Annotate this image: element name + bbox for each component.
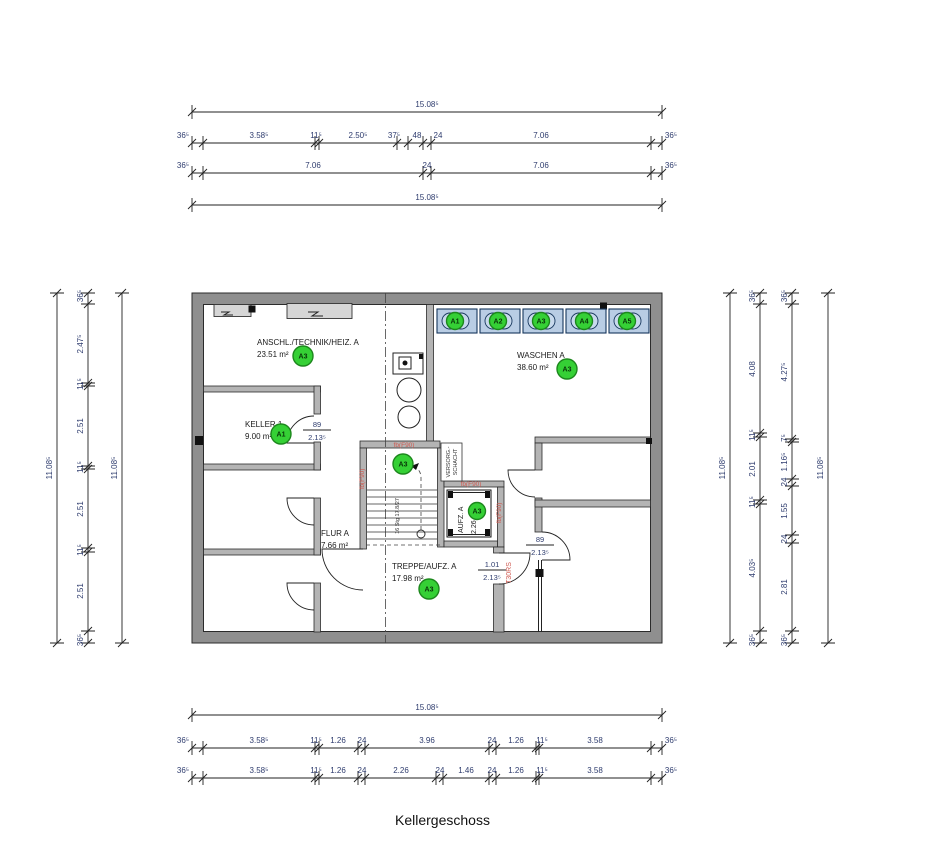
dim-label: 11⁵	[536, 736, 548, 745]
machine-tag-label: A3	[537, 319, 546, 326]
wall-rightrooms-top	[535, 437, 651, 443]
dim-label: 36⁵	[177, 766, 189, 775]
dim-label: 2.81	[780, 579, 789, 595]
dim-label: 36⁵	[177, 736, 189, 745]
dim-label: 24	[780, 534, 789, 543]
dim-chain-bottom: 15.08⁵ 36⁵ 3.58⁵ 11⁵ 1.26 24 3.96 24 1.2…	[177, 703, 677, 785]
dim-label: 3.58⁵	[250, 131, 269, 140]
area-label-waschen: 38.60 m²	[517, 363, 549, 372]
machine-tag-label: A5	[623, 319, 632, 326]
dim-label: 3.58⁵	[250, 736, 269, 745]
dim-label: 2.26	[393, 766, 409, 775]
fire-label-stair-top: fb(F90)	[394, 442, 415, 449]
dim-label: 36⁵	[780, 290, 789, 302]
elevator-pad-2	[485, 491, 490, 498]
dim-label: 3.96	[419, 736, 435, 745]
door-keller-width: 89	[313, 420, 321, 429]
wall-elevator-bottom	[444, 541, 498, 547]
wall-row2	[204, 464, 321, 470]
dim-chain-right: 11.08⁵ 36⁵ 4.08 11⁵ 2.01 11⁵ 4.03⁵ 36⁵ 3…	[718, 289, 835, 647]
room-tag-waschen-label: A3	[563, 367, 572, 374]
wall-rightrooms-mid	[535, 500, 651, 507]
wall-keller-top	[204, 386, 321, 392]
partition-post	[536, 569, 544, 577]
fire-label-elevator-top: fb(F90)	[461, 481, 482, 488]
room-label-treppe: TREPPE/AUFZ. A	[392, 562, 457, 571]
room-tag-anschl-label: A3	[299, 354, 308, 361]
dim-label: 11.08⁵	[718, 457, 727, 480]
room-tag-aufzug-label: A3	[473, 509, 482, 516]
fire-label-elevator-right: fb(F90)	[496, 503, 503, 524]
dim-label: 1.16⁵	[780, 453, 789, 472]
dim-label: 11⁵	[310, 766, 322, 775]
dim-label: 7.06	[533, 131, 549, 140]
wall-rightcol-1	[535, 443, 542, 470]
door-right-height: 2.13⁵	[531, 548, 549, 557]
elevator-pad-3	[448, 529, 453, 536]
floorplan-drawing: 15.08⁵ 36⁵ 3.58⁵ 11⁵ 2.50⁵ 37⁵ 48 24 7.0…	[0, 0, 952, 861]
dim-label: 2.51	[76, 501, 85, 517]
stair: 16 Stg 17.8/27	[366, 463, 440, 545]
wall-leftcol-4	[314, 583, 321, 632]
dim-label: 1.46	[458, 766, 474, 775]
room-label-flur: FLUR A	[321, 529, 350, 538]
room-label-waschen: WASCHEN A	[517, 351, 565, 360]
door-t30-height: 2.13⁵	[483, 573, 501, 582]
dim-chain-left: 11.08⁵ 36⁵ 2.47⁵ 11⁵ 2.51 11⁵ 2.51 11⁵ 2…	[45, 289, 129, 647]
dim-label: 4.27⁵	[780, 363, 789, 382]
dim-label: 36⁵	[76, 290, 85, 302]
elevator-pad-1	[448, 491, 453, 498]
dim-label: 1.26	[330, 766, 346, 775]
wall-anschl-waschen	[427, 305, 434, 442]
dim-label: 36⁵	[665, 131, 677, 140]
dim-label: 11⁵	[748, 429, 757, 441]
dim-label: 36⁵	[665, 161, 677, 170]
wall-leftcol-1	[314, 386, 321, 414]
dim-label: 36⁵	[780, 634, 789, 646]
shaft-and-elevator: VERSORG.- SCHACHT AUFZ. A 2.26 m²	[441, 443, 491, 537]
area-label-keller: 9.00 m²	[245, 432, 272, 441]
elevator-pad-4	[485, 529, 490, 536]
dim-label: 37⁵	[388, 131, 400, 140]
page-title: Kellergeschoss	[395, 812, 490, 828]
fire-label-t30-door: T30RS	[506, 562, 513, 584]
dim-label: 36⁵	[748, 634, 757, 646]
door-right-width: 89	[536, 535, 544, 544]
dim-label: 36⁵	[177, 161, 189, 170]
machine-tag-label: A2	[494, 319, 503, 326]
dim-label: 15.08⁵	[415, 100, 438, 109]
dim-label: 11.08⁵	[110, 457, 119, 480]
wall-leftcol-3	[314, 498, 321, 555]
door-t30	[499, 553, 530, 584]
room-label-aufzug: AUFZ. A	[458, 506, 465, 533]
dim-label: 11⁵	[76, 544, 85, 556]
stair-steps-note: 16 Stg 17.8/27	[395, 498, 401, 534]
dim-label: 24	[423, 161, 432, 170]
appliance-box	[393, 353, 423, 374]
dim-label: 11⁵	[76, 461, 85, 473]
appliance-dot	[403, 361, 408, 366]
boiler-2	[398, 406, 420, 428]
dim-label: 7.06	[305, 161, 321, 170]
wall-mark-2	[195, 436, 203, 445]
dim-label: 1.26	[508, 766, 524, 775]
dim-label: 24	[358, 736, 367, 745]
dim-label: 11⁵	[310, 131, 322, 140]
wall-leftcol-2	[314, 442, 321, 470]
wall-stub-bottom	[494, 584, 505, 632]
wall-stair-left	[360, 448, 367, 549]
dim-label: 7⁵	[780, 434, 789, 442]
washing-machine-4: A4	[566, 309, 606, 333]
washing-machine-3: A3	[523, 309, 563, 333]
dim-label: 2.01	[748, 461, 757, 477]
dim-label: 36⁵	[665, 736, 677, 745]
dim-label: 1.26	[508, 736, 524, 745]
dim-label: 24	[434, 131, 443, 140]
dim-label: 24	[488, 766, 497, 775]
fire-label-stair-left: fb(F90)	[359, 469, 366, 490]
dim-label: 24	[436, 766, 445, 775]
stair-walkline-start	[417, 530, 425, 538]
area-label-anschl: 23.51 m²	[257, 350, 289, 359]
door-room3	[287, 583, 314, 610]
dim-label: 3.58	[587, 766, 603, 775]
washing-machine-2: A2	[480, 309, 520, 333]
washing-machine-1: A1	[437, 309, 477, 333]
dim-label: 36⁵	[76, 634, 85, 646]
dim-label: 15.08⁵	[415, 703, 438, 712]
washing-machine-5: A5	[609, 309, 649, 333]
boiler-1	[397, 378, 421, 402]
dim-label: 1.26	[330, 736, 346, 745]
dim-label: 4.08	[748, 361, 757, 377]
dim-label: 3.58	[587, 736, 603, 745]
dim-label: 48	[413, 131, 422, 140]
room-label-anschl: ANSCHL./TECHNIK/HEIZ. A	[257, 338, 359, 347]
dim-label: 2.50⁵	[349, 131, 368, 140]
wall-mark-1	[249, 306, 256, 313]
wall-row3	[204, 549, 321, 555]
dim-label: 24	[358, 766, 367, 775]
dim-label: 7.06	[533, 161, 549, 170]
dim-chain-top: 15.08⁵ 36⁵ 3.58⁵ 11⁵ 2.50⁵ 37⁵ 48 24 7.0…	[177, 100, 677, 212]
dim-label: 11.08⁵	[816, 457, 825, 480]
machine-tag-label: A4	[580, 319, 589, 326]
dim-label: 15.08⁵	[415, 193, 438, 202]
dim-label: 3.58⁵	[250, 766, 269, 775]
dim-label: 11⁵	[536, 766, 548, 775]
machine-tag-label: A1	[451, 319, 460, 326]
shaft-label-1: VERSORG.-	[446, 446, 452, 477]
dim-label: 1.55	[780, 503, 789, 519]
washing-machines: A1 A2 A3 A4 A5	[437, 309, 649, 333]
stair-treads	[367, 490, 437, 539]
door-keller-height: 2.13⁵	[308, 433, 326, 442]
dim-label: 24	[780, 477, 789, 486]
shaft-label-2: SCHACHT	[453, 448, 459, 475]
dim-label: 24	[488, 736, 497, 745]
door-right-upper	[508, 470, 535, 497]
dim-label: 2.51	[76, 583, 85, 599]
room-tag-treppe-label: A3	[425, 587, 434, 594]
floorplan-page: 15.08⁵ 36⁵ 3.58⁵ 11⁵ 2.50⁵ 37⁵ 48 24 7.0…	[0, 0, 952, 861]
room-tag-stairwell-label: A3	[399, 462, 408, 469]
door-t30-width: 1.01	[485, 560, 500, 569]
wall-mark-4	[646, 438, 652, 444]
dim-label: 11⁵	[748, 496, 757, 508]
dim-label: 11.08⁵	[45, 457, 54, 480]
dim-label: 4.03⁵	[748, 559, 757, 578]
area-label-flur: 7.66 m²	[321, 541, 348, 550]
dim-label: 2.47⁵	[76, 335, 85, 354]
dim-label: 36⁵	[177, 131, 189, 140]
dim-label: 36⁵	[665, 766, 677, 775]
stair-walkline	[411, 466, 421, 530]
door-room2	[287, 498, 314, 525]
dim-label: 11⁵	[310, 736, 322, 745]
area-label-treppe: 17.98 m²	[392, 574, 424, 583]
door-flur-treppe	[322, 549, 363, 590]
wall-stub-top	[494, 547, 505, 553]
appliances	[393, 353, 423, 428]
dim-label: 36⁵	[748, 290, 757, 302]
dim-label: 11⁵	[76, 378, 85, 390]
appliance-nub	[419, 354, 423, 359]
dim-label: 2.51	[76, 418, 85, 434]
room-tag-keller-label: A1	[277, 432, 286, 439]
